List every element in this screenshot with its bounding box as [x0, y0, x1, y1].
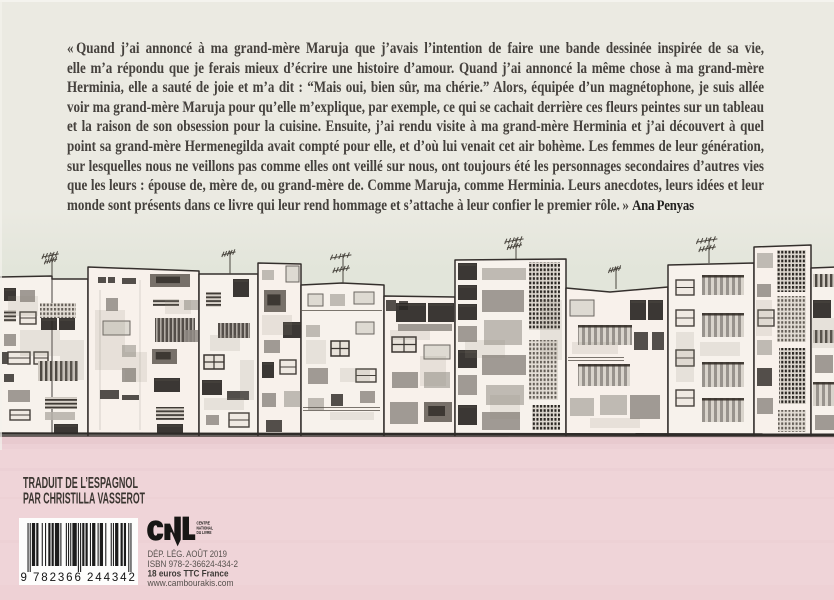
svg-text:TRADUIT DE L’ESPAGNOL: TRADUIT DE L’ESPAGNOL — [23, 475, 138, 492]
svg-text:www.cambourakis.com: www.cambourakis.com — [147, 578, 234, 588]
svg-text:PAR CHRISTILLA VASSEROT: PAR CHRISTILLA VASSEROT — [23, 491, 145, 508]
svg-text:9: 9 — [21, 572, 27, 584]
svg-text:244342: 244342 — [87, 572, 137, 584]
svg-text:DU LIVRE: DU LIVRE — [197, 530, 212, 535]
svg-text:782366: 782366 — [33, 572, 83, 584]
